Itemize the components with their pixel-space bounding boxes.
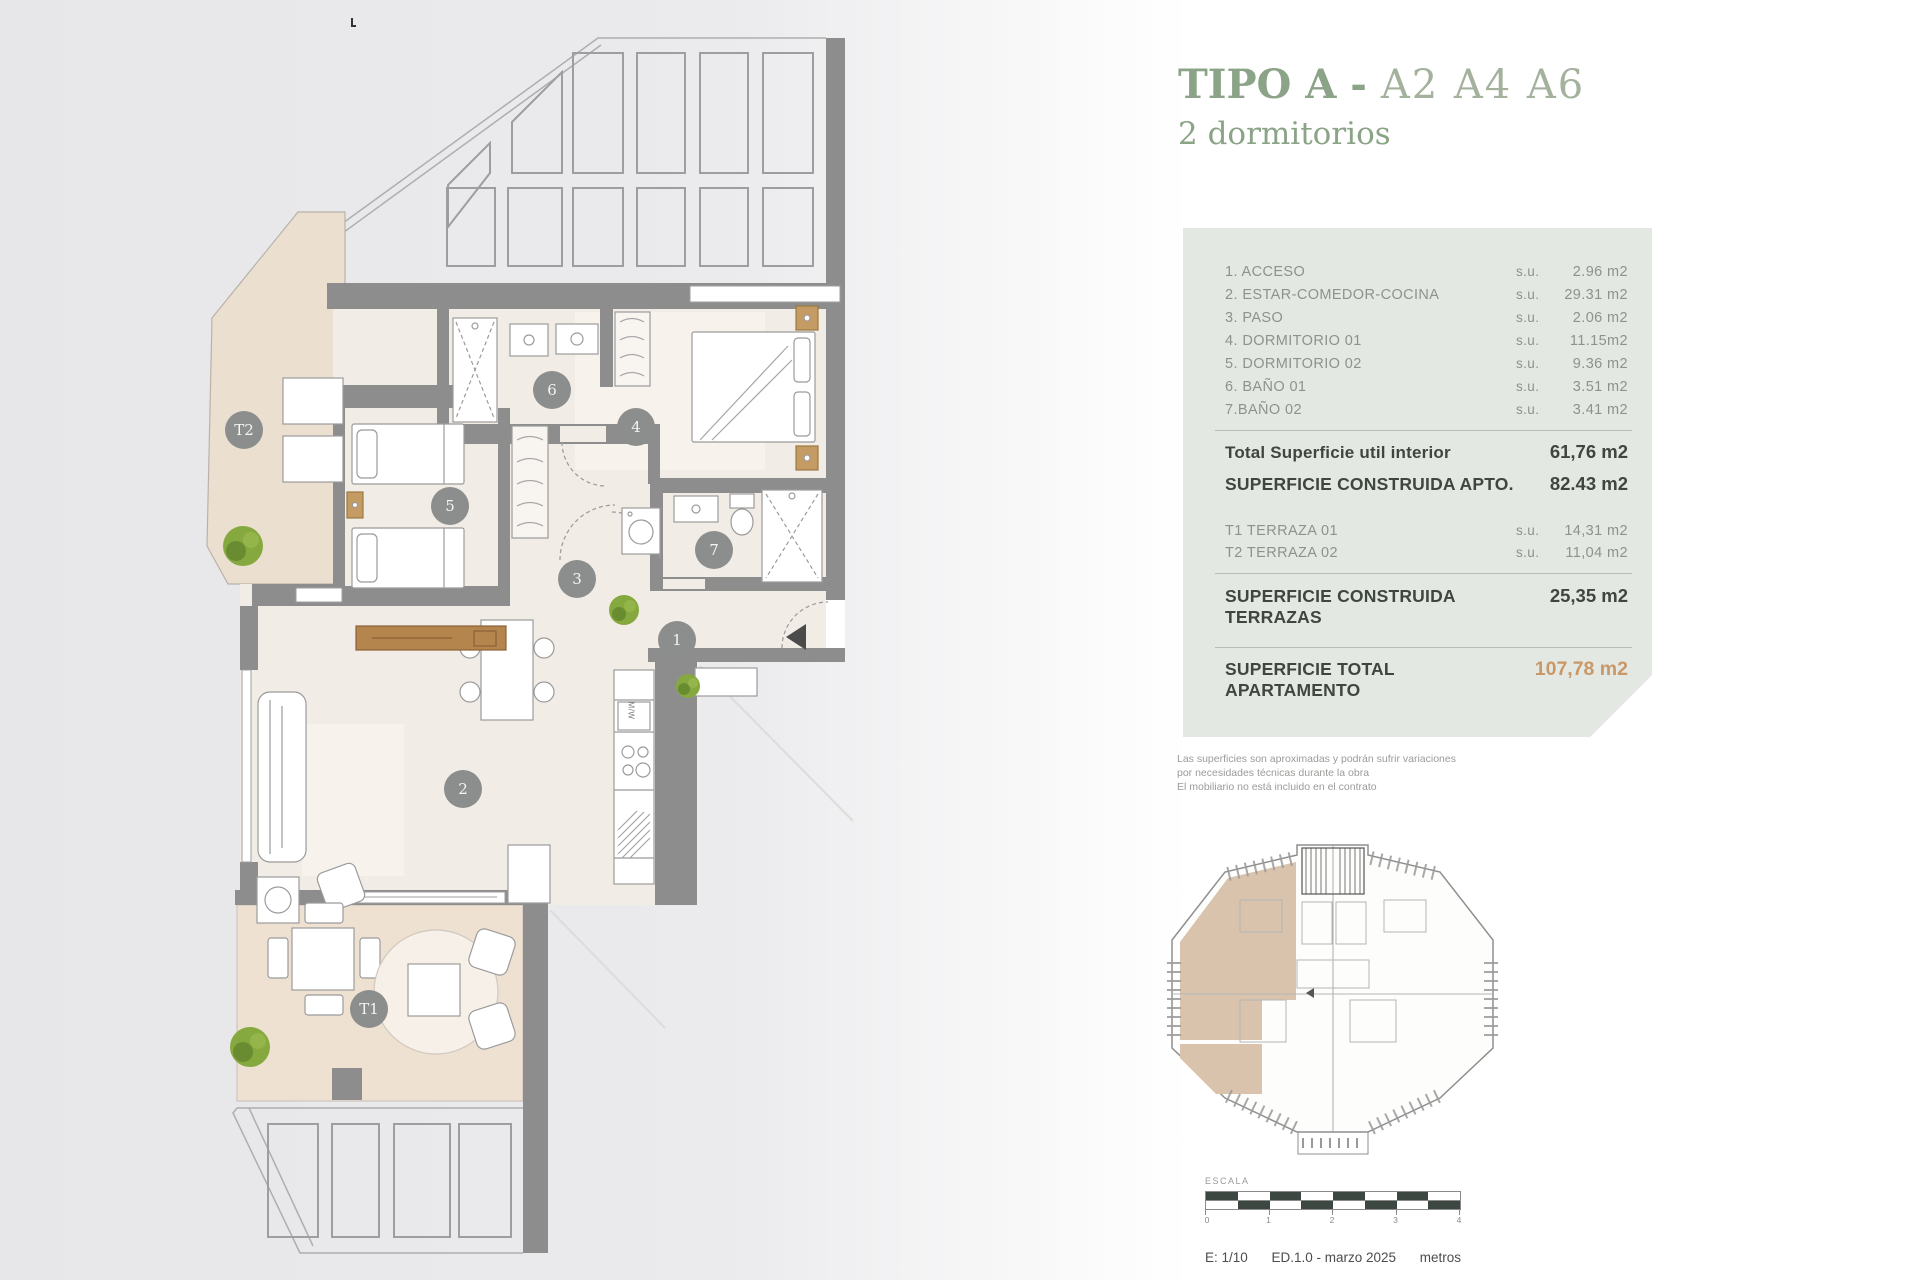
divider — [1215, 430, 1632, 431]
bedrooms-subtitle: 2 dormitorios — [1178, 116, 1585, 152]
type-label: TIPO A — [1178, 61, 1336, 108]
kitchen-appliance-label: M/W — [626, 702, 635, 720]
pergola-bottom-panels — [268, 1124, 511, 1237]
built-terraces-row: SUPERFICIE CONSTRUIDA TERRAZAS 25,35 m2 — [1225, 585, 1628, 628]
scale-ticks: 0 1 2 3 4 — [1205, 1212, 1461, 1226]
room-marker-2: 2 — [444, 770, 482, 808]
scale-bar-graphic — [1205, 1191, 1461, 1210]
terrace-row: T1 TERRAZA 01s.u.14,31 m2 — [1225, 523, 1628, 546]
surface-table-panel: 1. ACCESOs.u.2.96 m2 2. ESTAR-COMEDOR-CO… — [1183, 228, 1652, 737]
scale-captions: E: 1/10 ED.1.0 - marzo 2025 metros — [1205, 1250, 1461, 1265]
brochure-page: T2 6 5 4 3 7 1 2 T1 M/W TIPO A - A2 A4 A… — [0, 0, 1920, 1280]
room-marker-3: 3 — [558, 560, 596, 598]
surface-row: 7.BAÑO 02s.u.3.41 m2 — [1225, 402, 1628, 425]
unit-codes: A2 A4 A6 — [1381, 62, 1585, 108]
scale-bar: ESCALA 0 1 2 3 4 E: 1/10 ED.1.0 - marzo … — [1205, 1176, 1461, 1265]
room-marker-5: 5 — [431, 487, 469, 525]
print-mark — [352, 18, 356, 26]
scale-unit: metros — [1420, 1250, 1461, 1265]
divider — [1215, 647, 1632, 648]
surface-row: 4. DORMITORIO 01s.u.11.15m2 — [1225, 333, 1628, 356]
room-marker-6: 6 — [533, 371, 571, 409]
built-apartment-row: SUPERFICIE CONSTRUIDA APTO. 82.43 m2 — [1225, 473, 1628, 495]
total-interior-row: Total Superficie util interior 61,76 m2 — [1225, 441, 1628, 463]
scale-ratio: E: 1/10 — [1205, 1250, 1248, 1265]
scale-label: ESCALA — [1205, 1176, 1461, 1186]
surface-row: 1. ACCESOs.u.2.96 m2 — [1225, 264, 1628, 287]
room-marker-7: 7 — [695, 531, 733, 569]
disclaimer-note: Las superficies son aproximadas y podrán… — [1177, 752, 1456, 794]
room-marker-t2: T2 — [225, 411, 263, 449]
room-marker-1: 1 — [658, 621, 696, 659]
key-plan — [1172, 845, 1493, 1154]
plan-edition: ED.1.0 - marzo 2025 — [1271, 1250, 1396, 1265]
total-apartment-value: 107,78 m2 — [1535, 658, 1628, 681]
terrace-row: T2 TERRAZA 02s.u.11,04 m2 — [1225, 545, 1628, 568]
surface-row: 2. ESTAR-COMEDOR-COCINAs.u.29.31 m2 — [1225, 287, 1628, 310]
room-marker-t1: T1 — [350, 990, 388, 1028]
sheet-header: TIPO A - A2 A4 A6 2 dormitorios — [1178, 62, 1585, 152]
surface-row: 6. BAÑO 01s.u.3.51 m2 — [1225, 379, 1628, 402]
page-title: TIPO A - A2 A4 A6 — [1178, 62, 1585, 108]
divider — [1215, 573, 1632, 574]
surface-row: 5. DORMITORIO 02s.u.9.36 m2 — [1225, 356, 1628, 379]
total-apartment-row: SUPERFICIE TOTAL APARTAMENTO 107,78 m2 — [1225, 658, 1628, 701]
surface-row: 3. PASOs.u.2.06 m2 — [1225, 310, 1628, 333]
room-marker-4: 4 — [617, 408, 655, 446]
